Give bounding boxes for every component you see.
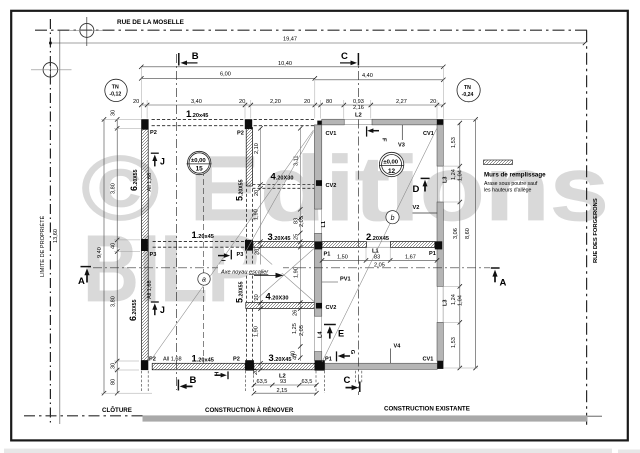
- svg-text:C: C: [344, 375, 351, 386]
- svg-text:4,40: 4,40: [362, 73, 373, 79]
- svg-text:CONSTRUCTION À RÉNOVER: CONSTRUCTION À RÉNOVER: [205, 406, 294, 414]
- svg-text:1,04: 1,04: [458, 295, 464, 306]
- svg-text:Murs de remplissage: Murs de remplissage: [484, 172, 546, 179]
- svg-text:2,16: 2,16: [353, 105, 364, 111]
- svg-text:63,5: 63,5: [257, 379, 268, 385]
- svg-text:CV1: CV1: [326, 131, 337, 137]
- svg-text:L1: L1: [321, 221, 327, 228]
- svg-text:-0,24: -0,24: [462, 92, 474, 98]
- svg-text:RUE DE LA MOSELLE: RUE DE LA MOSELLE: [117, 19, 185, 26]
- svg-text:a: a: [202, 277, 206, 284]
- svg-text:B: B: [192, 51, 199, 62]
- svg-text:H: H: [213, 372, 219, 376]
- svg-text:CV1: CV1: [423, 131, 434, 137]
- svg-text:J: J: [160, 156, 165, 166]
- svg-text:P1: P1: [324, 252, 331, 258]
- svg-text:P2: P2: [149, 356, 156, 362]
- svg-text:Axe noyau escalier: Axe noyau escalier: [220, 269, 269, 275]
- svg-text:1,90: 1,90: [254, 326, 260, 337]
- svg-text:2,15: 2,15: [277, 388, 288, 394]
- svg-text:L3: L3: [443, 299, 449, 306]
- svg-text:b: b: [391, 215, 395, 222]
- svg-text:LIMITE DE PROPRIÉTÉ: LIMITE DE PROPRIÉTÉ: [39, 216, 46, 277]
- svg-text:19,47: 19,47: [283, 37, 297, 43]
- svg-text:All 1,68: All 1,68: [147, 280, 153, 299]
- svg-text:V3: V3: [398, 142, 405, 148]
- svg-text:D: D: [413, 184, 420, 195]
- svg-text:CLÔTURE: CLÔTURE: [102, 406, 132, 414]
- svg-text:26: 26: [293, 310, 299, 316]
- svg-text:3,06: 3,06: [453, 228, 459, 239]
- svg-text:13,60: 13,60: [53, 229, 59, 243]
- svg-text:2,10: 2,10: [254, 143, 260, 154]
- svg-text:CV2: CV2: [326, 183, 337, 189]
- svg-text:3,40: 3,40: [191, 99, 202, 105]
- svg-text:10,40: 10,40: [278, 61, 292, 67]
- svg-text:Arase sous poutre sauf: Arase sous poutre sauf: [484, 181, 538, 187]
- svg-text:30: 30: [111, 110, 117, 116]
- svg-text:2,27: 2,27: [396, 99, 407, 105]
- svg-text:93: 93: [280, 379, 286, 385]
- svg-text:P1: P1: [429, 251, 436, 257]
- svg-text:30: 30: [111, 363, 117, 369]
- svg-text:les hauteurs d'allège: les hauteurs d'allège: [484, 188, 532, 194]
- svg-text:CV2: CV2: [326, 305, 337, 311]
- svg-text:2,05: 2,05: [299, 325, 305, 336]
- svg-text:CONSTRUCTION EXISTANTE: CONSTRUCTION EXISTANTE: [384, 406, 470, 413]
- svg-text:1,24: 1,24: [451, 169, 457, 180]
- svg-text:B: B: [190, 375, 197, 386]
- svg-text:1,53: 1,53: [451, 137, 457, 148]
- svg-text:-0,12: -0,12: [109, 91, 121, 97]
- svg-text:9,40: 9,40: [97, 247, 103, 258]
- svg-text:20: 20: [239, 99, 245, 105]
- svg-text:L1: L1: [372, 249, 380, 255]
- svg-text:15: 15: [196, 166, 204, 173]
- svg-text:J: J: [160, 305, 165, 315]
- svg-text:P3: P3: [237, 252, 244, 258]
- svg-text:83: 83: [374, 254, 380, 260]
- svg-text:20: 20: [254, 294, 260, 300]
- svg-text:±0,00: ±0,00: [191, 158, 206, 164]
- svg-text:P2: P2: [150, 130, 157, 136]
- svg-text:L2: L2: [355, 112, 362, 118]
- svg-text:±0,00: ±0,00: [383, 160, 398, 166]
- svg-text:A: A: [78, 276, 85, 287]
- svg-text:63,5: 63,5: [302, 379, 313, 385]
- svg-text:3,80: 3,80: [111, 296, 117, 307]
- svg-text:P2: P2: [233, 356, 240, 362]
- svg-text:A: A: [500, 278, 507, 289]
- svg-text:40: 40: [293, 354, 299, 360]
- svg-text:1,50: 1,50: [337, 254, 348, 260]
- svg-text:P1: P1: [325, 356, 332, 362]
- svg-text:G: G: [349, 350, 355, 355]
- svg-text:2,20: 2,20: [270, 99, 281, 105]
- svg-text:TN: TN: [464, 85, 471, 91]
- svg-text:40: 40: [111, 243, 117, 249]
- svg-text:RUE DES FORGERONS: RUE DES FORGERONS: [593, 198, 599, 263]
- svg-text:6,00: 6,00: [220, 72, 231, 78]
- svg-text:2,05: 2,05: [299, 216, 305, 227]
- svg-text:80: 80: [111, 379, 117, 385]
- svg-text:20: 20: [133, 99, 139, 105]
- svg-text:12: 12: [388, 168, 396, 175]
- svg-text:8,60: 8,60: [465, 228, 471, 239]
- svg-text:20: 20: [254, 190, 260, 196]
- svg-text:C: C: [341, 51, 348, 62]
- svg-text:P2: P2: [237, 131, 244, 137]
- svg-text:L2: L2: [279, 373, 286, 379]
- svg-text:All 1,68: All 1,68: [147, 173, 153, 192]
- svg-text:20: 20: [304, 99, 310, 105]
- svg-text:V2: V2: [413, 205, 420, 211]
- svg-text:L3: L3: [443, 176, 449, 183]
- svg-text:3,80: 3,80: [111, 183, 117, 194]
- svg-text:CV1: CV1: [423, 357, 434, 363]
- svg-text:1,24: 1,24: [451, 294, 457, 305]
- svg-text:20: 20: [430, 99, 436, 105]
- svg-text:All 1,68: All 1,68: [163, 356, 182, 362]
- svg-text:TN: TN: [112, 85, 119, 91]
- svg-text:V4: V4: [394, 344, 402, 350]
- svg-text:L4: L4: [318, 331, 324, 338]
- svg-text:1,90: 1,90: [293, 267, 299, 278]
- svg-text:1,04: 1,04: [458, 170, 464, 181]
- svg-text:80: 80: [326, 99, 332, 105]
- svg-text:1,67: 1,67: [405, 254, 416, 260]
- svg-text:PV1: PV1: [340, 276, 351, 282]
- svg-text:1,53: 1,53: [451, 337, 457, 348]
- svg-text:P3: P3: [150, 252, 157, 258]
- svg-text:1,25: 1,25: [292, 323, 298, 334]
- svg-text:E: E: [338, 328, 344, 338]
- svg-text:F: F: [381, 138, 387, 142]
